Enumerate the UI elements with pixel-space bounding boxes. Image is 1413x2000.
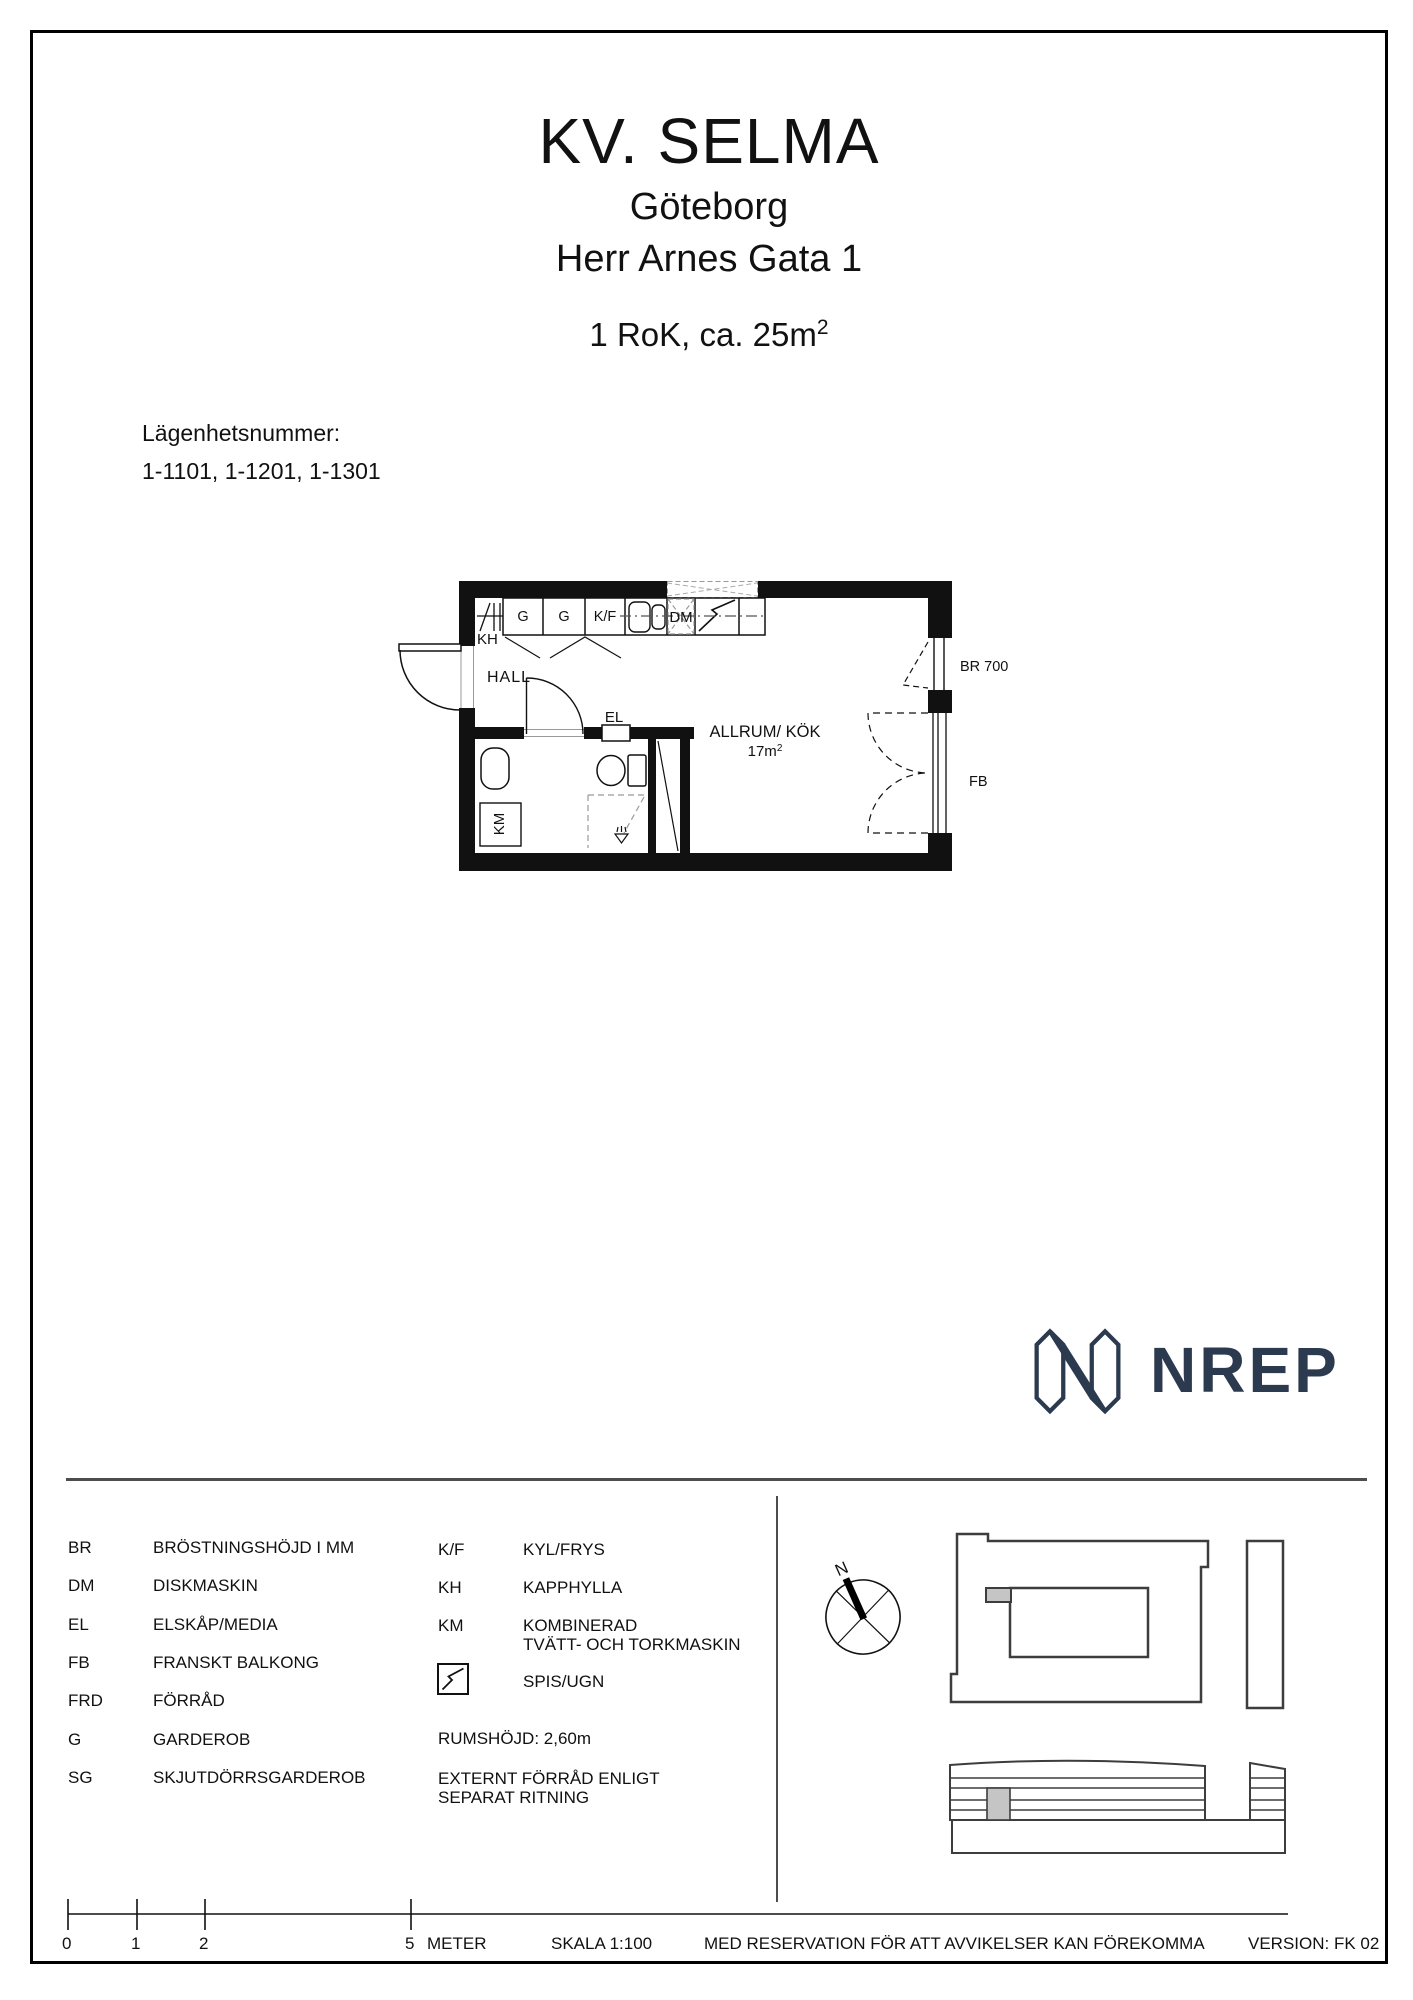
legend-desc-el: ELSKÅP/MEDIA (153, 1615, 278, 1635)
city-title: Göteborg (30, 186, 1388, 229)
el-label: EL (605, 709, 623, 726)
legend-desc-stove: SPIS/UGN (523, 1672, 604, 1692)
kitchen-wall-opening (667, 581, 758, 598)
nrep-logo-icon (1037, 1331, 1119, 1411)
legend-desc-kh: KAPPHYLLA (523, 1578, 622, 1598)
legend-abbr-kh: KH (438, 1578, 462, 1598)
courtyard-outline (1010, 1588, 1148, 1657)
hall-label: HALL (487, 669, 531, 686)
legend-abbr-br: BR (68, 1538, 92, 1558)
km-label: KM (491, 813, 508, 836)
legend-abbr-kf: K/F (438, 1540, 464, 1560)
toilet-icon (597, 755, 646, 786)
version-label: VERSION: FK 02 (1248, 1934, 1379, 1954)
legend-abbr-km: KM (438, 1616, 464, 1636)
legend-abbr-fb: FB (68, 1653, 90, 1673)
legend-desc-frd: FÖRRÅD (153, 1691, 225, 1711)
address-title: Herr Arnes Gata 1 (30, 238, 1388, 281)
north-label: N (832, 1558, 851, 1580)
section-divider (66, 1478, 1367, 1481)
legend-desc-km-1: KOMBINERAD (523, 1616, 637, 1636)
nrep-logo-text: NREP (1150, 1334, 1340, 1406)
meter-label: METER (427, 1934, 487, 1954)
scale-tick-1: 1 (131, 1934, 140, 1954)
fb-label: FB (969, 774, 988, 790)
project-title: KV. SELMA (30, 104, 1388, 178)
entry-door (399, 644, 474, 710)
coat-shelf-label: KH (477, 631, 498, 648)
overhead-cabinet-marks (505, 637, 621, 658)
apartment-numbers: 1-1101, 1-1201, 1-1301 (142, 458, 381, 485)
adjacent-building-outline (1247, 1541, 1283, 1708)
elevation-right-block (1250, 1763, 1285, 1820)
br-window (903, 638, 952, 690)
floorplan-document: { "page": { "title_project": "KV. SELMA"… (0, 0, 1413, 2000)
legend-desc-sg: SKJUTDÖRRSGARDEROB (153, 1768, 366, 1788)
scale-tick-2: 2 (199, 1934, 208, 1954)
shower-area (588, 795, 646, 848)
room-label: ALLRUM/ KÖK (710, 723, 821, 741)
bathroom-door (524, 678, 584, 737)
closet (658, 741, 678, 851)
stove-legend-icon (436, 1662, 470, 1696)
scale-tick-0: 0 (62, 1934, 71, 1954)
washer-dryer: KM (480, 803, 521, 846)
scale-bar (50, 1892, 1300, 1937)
legend-abbr-g: G (68, 1730, 81, 1750)
legend-divider (776, 1496, 778, 1902)
square-meter-sup: 2 (817, 316, 829, 339)
building-elevation (940, 1752, 1295, 1862)
scale-tick-5: 5 (405, 1934, 414, 1954)
legend-abbr-sg: SG (68, 1768, 93, 1788)
apartment-location-highlight (986, 1588, 1011, 1602)
legend-desc-dm: DISKMASKIN (153, 1576, 258, 1596)
floor-drain-icon (615, 826, 628, 843)
french-balcony-doors (868, 713, 952, 833)
wardrobe2-label: G (558, 609, 569, 625)
sink-icon (629, 602, 665, 632)
legend-abbr-frd: FRD (68, 1691, 103, 1711)
legend-desc-br: BRÖSTNINGSHÖJD I MM (153, 1538, 354, 1558)
room-height-note: RUMSHÖJD: 2,60m (438, 1729, 591, 1749)
dishwasher-label: DM (669, 609, 692, 626)
site-plan (940, 1524, 1295, 1714)
floor-plan: KM G G K/F DM KH HALL (390, 570, 1020, 890)
el-cabinet (602, 725, 630, 741)
br-label: BR 700 (960, 659, 1008, 675)
disclaimer-text: MED RESERVATION FÖR ATT AVVIKELSER KAN F… (704, 1934, 1205, 1954)
elevation-base (952, 1820, 1285, 1853)
external-storage-note-1: EXTERNT FÖRRÅD ENLIGT (438, 1769, 660, 1789)
washbasin-icon (481, 748, 509, 789)
nrep-logo: NREP (1020, 1312, 1390, 1420)
apartment-elevation-highlight (987, 1788, 1010, 1820)
legend-abbr-el: EL (68, 1615, 89, 1635)
room-area-label: 17m2 (748, 743, 783, 760)
legend-desc-km-2: TVÄTT- OCH TORKMASKIN (523, 1635, 741, 1655)
apartment-type: 1 RoK, ca. 25m2 (30, 316, 1388, 354)
apartment-number-label: Lägenhetsnummer: (142, 420, 340, 447)
legend-desc-g: GARDEROB (153, 1730, 250, 1750)
scale-label: SKALA 1:100 (551, 1934, 652, 1954)
legend-abbr-dm: DM (68, 1576, 94, 1596)
wardrobe1-label: G (517, 609, 528, 625)
legend-desc-fb: FRANSKT BALKONG (153, 1653, 319, 1673)
coat-shelf-icon (477, 603, 503, 631)
legend-desc-kf: KYL/FRYS (523, 1540, 605, 1560)
compass-icon: N (805, 1558, 921, 1674)
title-block: KV. SELMA Göteborg Herr Arnes Gata 1 1 R… (30, 0, 1388, 400)
fridge-freezer-label: K/F (594, 609, 617, 625)
external-storage-note-2: SEPARAT RITNING (438, 1788, 589, 1808)
